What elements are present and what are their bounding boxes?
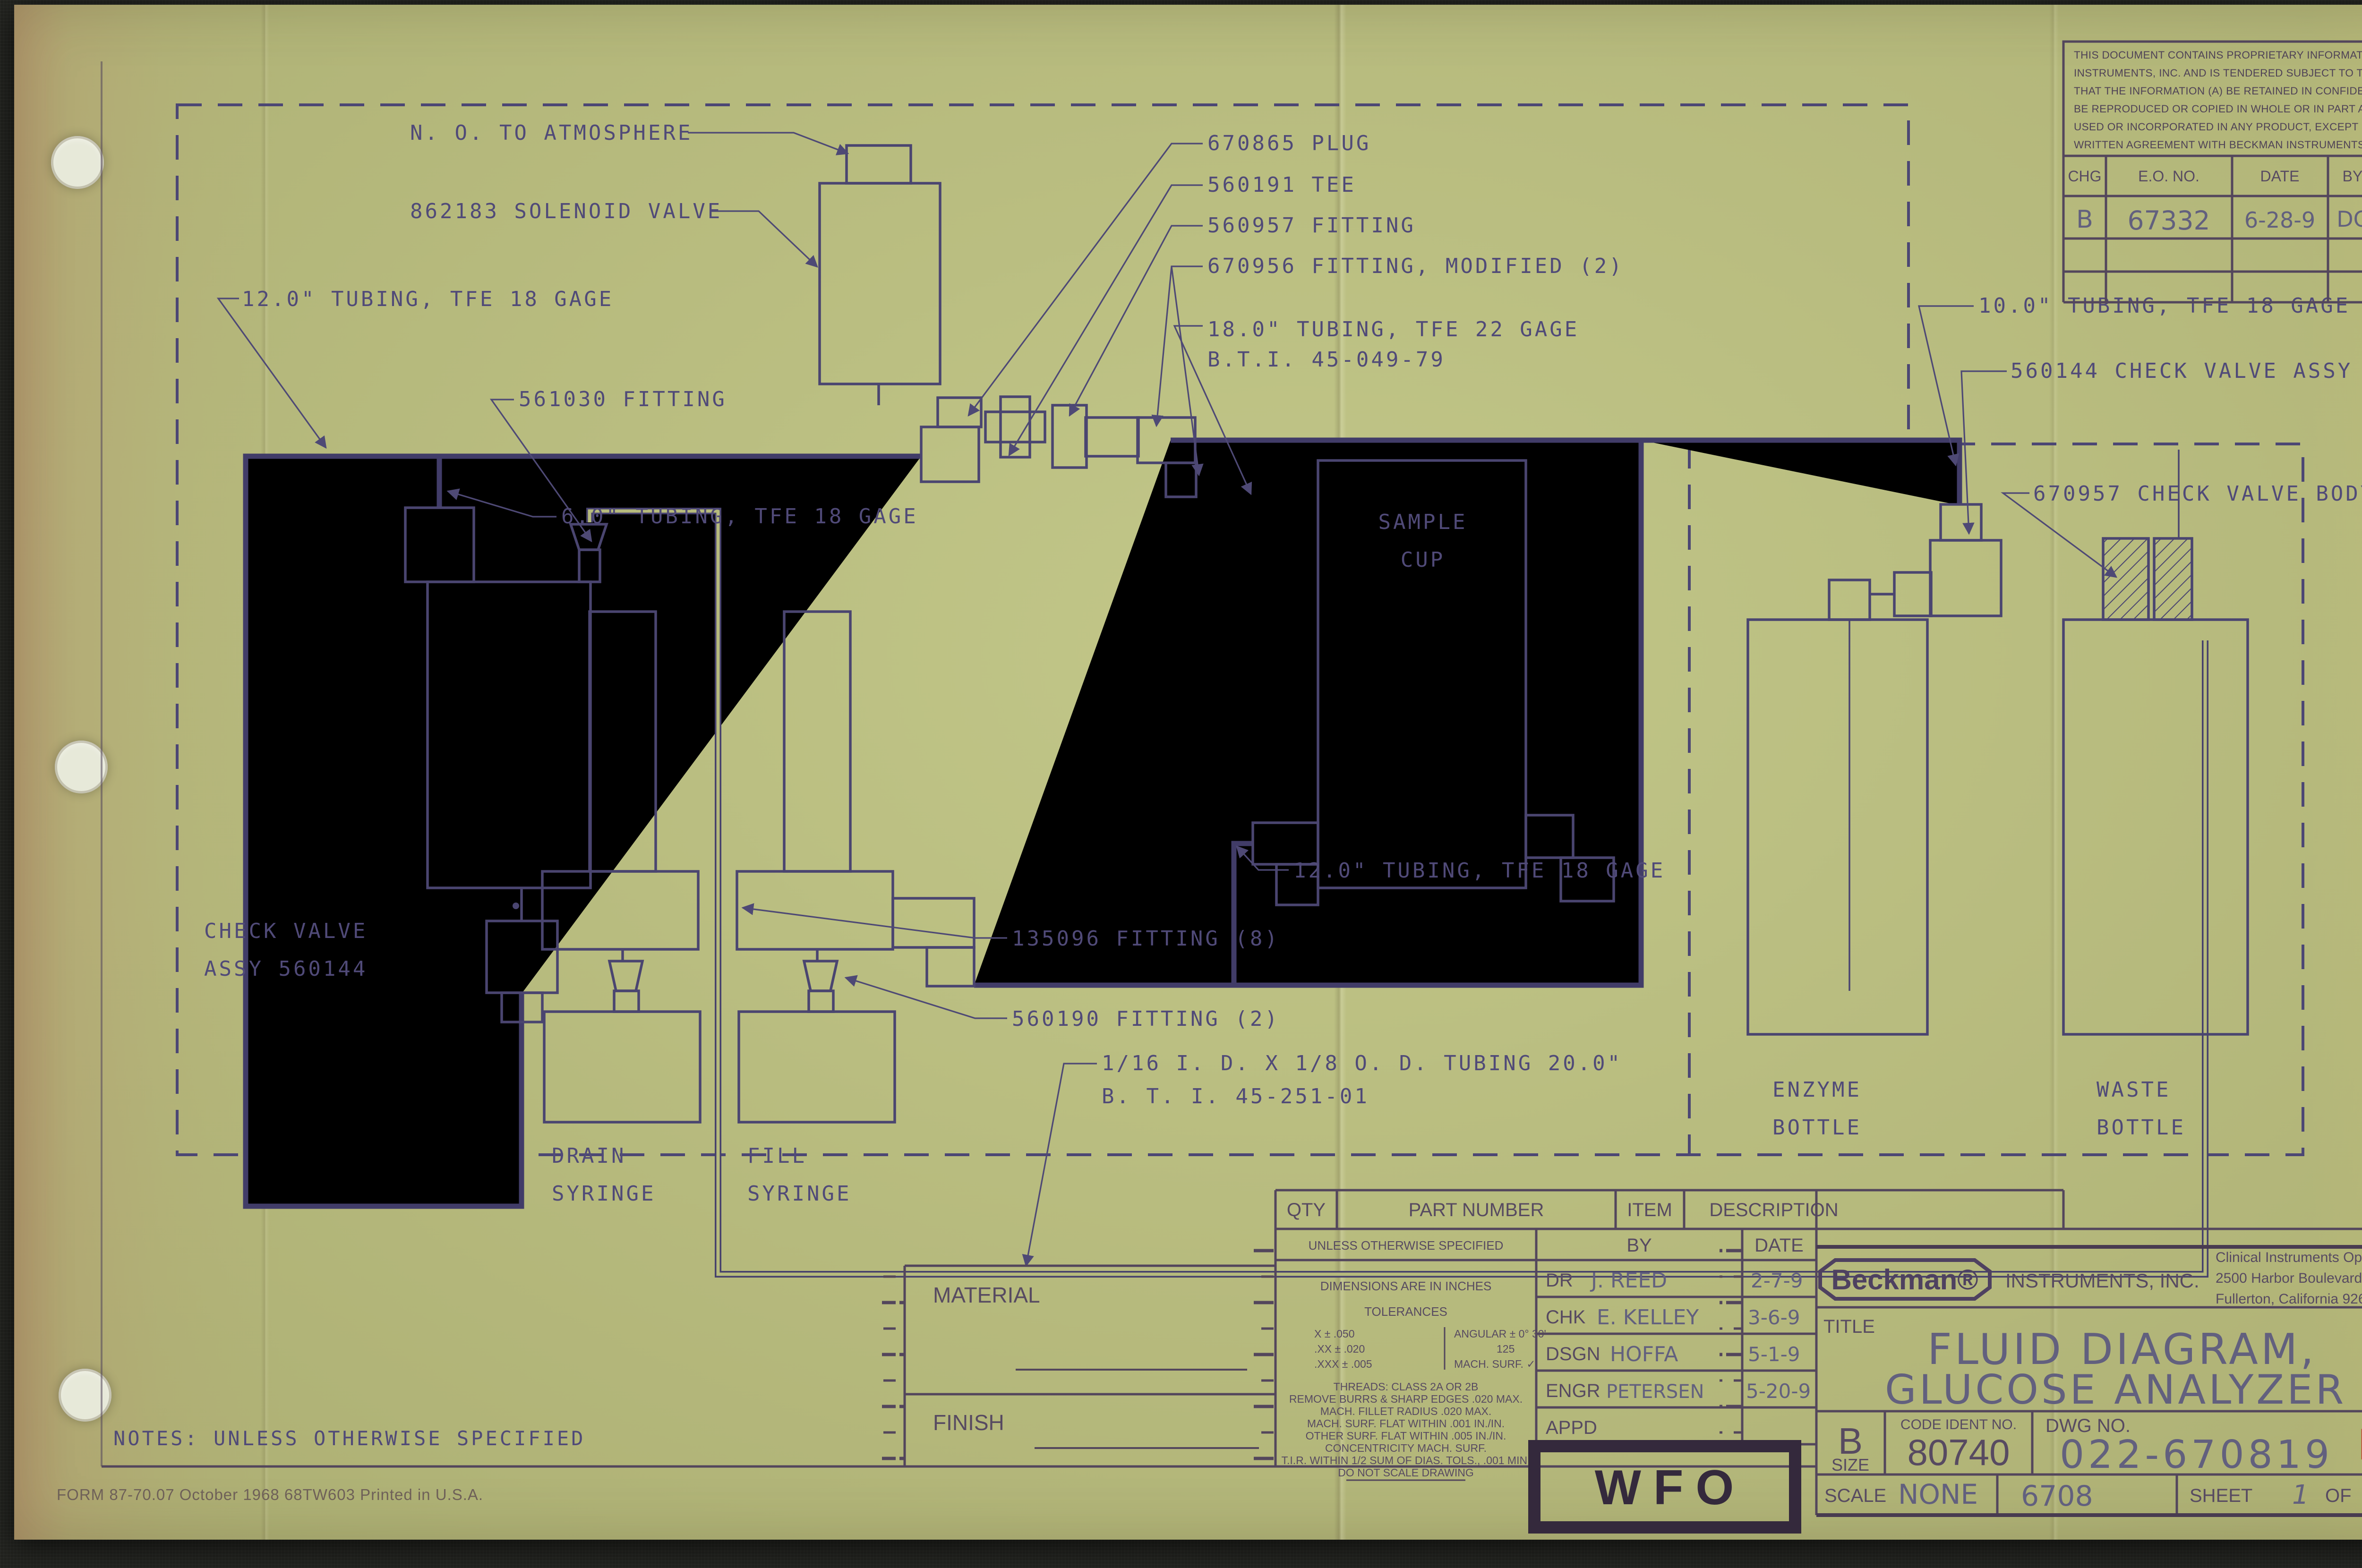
- specs-line: OTHER SURF. FLAT WITHIN .005 IN./IN.: [1306, 1430, 1506, 1442]
- specs-tol-xx: .XX ± .020: [1314, 1343, 1365, 1355]
- chk-name: E. KELLEY: [1597, 1305, 1699, 1329]
- by-header: BY: [1626, 1235, 1652, 1256]
- code-ident-value: 80740: [1908, 1432, 2010, 1473]
- label-enzyme-2: BOTTLE: [1772, 1116, 1862, 1140]
- notice-line: INSTRUMENTS, INC. AND IS TENDERED SUBJEC…: [2074, 67, 2362, 79]
- fitting-cluster: [921, 397, 1196, 497]
- label-solenoid-valve: 862183 SOLENOID VALVE: [410, 199, 722, 223]
- solenoid-valve: [820, 145, 940, 405]
- label-check-valve-assy-560144: 560144 CHECK VALVE ASSY: [2011, 359, 2353, 383]
- description-header: DESCRIPTION: [1709, 1200, 1838, 1220]
- rev-header-chg: CHG: [2068, 168, 2101, 185]
- label-fitting-561030: 561030 FITTING: [519, 387, 727, 411]
- engr-date: 5-20-9: [1746, 1380, 1811, 1403]
- label-fill-2: SYRINGE: [747, 1182, 851, 1206]
- rev-date-value: 6-28-9: [2244, 207, 2315, 233]
- dsgn-date: 5-1-9: [1748, 1343, 1800, 1366]
- label-drain-2: SYRINGE: [552, 1182, 656, 1206]
- form-footer: FORM 87-70.07 October 1968 68TW603 Print…: [57, 1486, 483, 1503]
- specs-line: REMOVE BURRS & SHARP EDGES .020 MAX.: [1289, 1393, 1523, 1405]
- label-tubing-18-2: B.T.I. 45-049-79: [1207, 348, 1446, 372]
- specs-tol-x: X ± .050: [1314, 1328, 1355, 1340]
- company-address-1: Clinical Instruments Operations: [2216, 1250, 2362, 1265]
- label-tubing-18-1: 18.0" TUBING, TFE 22 GAGE: [1207, 317, 1579, 341]
- scale-sheet-row: SCALE NONE 6708 SHEET 1 OF 1: [1816, 1474, 2362, 1515]
- label-tubing-12-mid: 12.0" TUBING, TFE 18 GAGE: [1293, 859, 1665, 883]
- rev-header-date: DATE: [2260, 168, 2300, 185]
- label-waste-1: WASTE: [2097, 1078, 2171, 1102]
- specs-line: MACH. SURF. FLAT WITHIN .001 IN./IN.: [1307, 1417, 1505, 1430]
- label-tubing-6: 6.0" TUBING, TFE 18 GAGE: [561, 504, 918, 528]
- role-dsgn: DSGN: [1546, 1344, 1600, 1364]
- dwg-rev-letter: B: [2357, 1421, 2362, 1469]
- code-ident-label: CODE IDENT NO.: [1900, 1417, 2017, 1432]
- engr-name: PETERSEN: [1606, 1381, 1704, 1403]
- label-tubing-116-2: B. T. I. 45-251-01: [1102, 1084, 1369, 1108]
- item-header: ITEM: [1627, 1200, 1672, 1220]
- label-fitting-135096: 135096 FITTING (8): [1012, 927, 1280, 951]
- specs-surf-num: 125: [1497, 1343, 1515, 1355]
- rev-by-value: DC: [2336, 206, 2362, 232]
- label-tubing-10: 10.0" TUBING, TFE 18 GAGE: [1978, 294, 2350, 318]
- part-number-header: PART NUMBER: [1409, 1200, 1544, 1220]
- fluid-diagram-drawing: N. O. TO ATMOSPHERE 862183 SOLENOID VALV…: [0, 0, 2362, 1568]
- notice-line: WRITTEN AGREEMENT WITH BECKMAN INSTRUMEN…: [2074, 139, 2362, 151]
- title-line-2: GLUCOSE ANALYZER: [1885, 1366, 2346, 1414]
- size-code-dwg-row: B SIZE CODE IDENT NO. 80740 DWG NO. 022-…: [1816, 1411, 2362, 1477]
- company-suffix: INSTRUMENTS, INC.: [2005, 1270, 2199, 1292]
- role-dr: DR: [1546, 1270, 1573, 1291]
- title-section: TITLE FLUID DIAGRAM, GLUCOSE ANALYZER: [1823, 1316, 2346, 1414]
- notice-line: USED OR INCORPORATED IN ANY PRODUCT, EXC…: [2074, 121, 2362, 133]
- dr-date: 2-7-9: [1751, 1269, 1803, 1292]
- label-check-valve-body-670957: 670957 CHECK VALVE BODY: [2033, 482, 2362, 506]
- specs-tol-xxx: .XXX ± .005: [1314, 1358, 1372, 1370]
- revision-table: CHG E.O. NO. DATE BY CHK B 67332 6-28-9 …: [2063, 156, 2362, 302]
- label-plug-670865: 670865 PLUG: [1207, 131, 1371, 155]
- rev-chg-value: B: [2076, 205, 2093, 234]
- chk-date: 3-6-9: [1748, 1306, 1800, 1329]
- waste-bottle: [2063, 538, 2248, 1034]
- date-header: DATE: [1754, 1235, 1804, 1256]
- fill-syringe: [737, 612, 974, 1122]
- notice-line: THIS DOCUMENT CONTAINS PROPRIETARY INFOR…: [2074, 49, 2362, 61]
- notes-text: NOTES: UNLESS OTHERWISE SPECIFIED: [113, 1427, 585, 1450]
- label-sample-cup-2: CUP: [1401, 548, 1445, 572]
- role-engr: ENGR: [1546, 1381, 1600, 1401]
- parts-list-header: QTY PART NUMBER ITEM DESCRIPTION: [1275, 1190, 2362, 1229]
- label-fitting-560957: 560957 FITTING: [1207, 213, 1416, 238]
- notice-line: THAT THE INFORMATION (A) BE RETAINED IN …: [2074, 85, 2362, 97]
- specs-line: THREADS: CLASS 2A OR 2B: [1334, 1381, 1479, 1393]
- role-appd: APPD: [1546, 1417, 1597, 1438]
- wfo-stamp: WFO: [1534, 1446, 1795, 1527]
- rev-header-eono: E.O. NO.: [2138, 168, 2199, 185]
- material-label: MATERIAL: [933, 1283, 1040, 1307]
- role-chk: CHK: [1546, 1307, 1586, 1328]
- dr-name: J. REED: [1590, 1269, 1667, 1293]
- check-valve-assembly-right: [1829, 504, 2001, 620]
- sheet-label: SHEET: [2190, 1485, 2252, 1506]
- label-fitting-670956: 670956 FITTING, MODIFIED (2): [1207, 254, 1624, 278]
- notice-line: BE REPRODUCED OR COPIED IN WHOLE OR IN P…: [2074, 103, 2362, 115]
- qty-header: QTY: [1287, 1200, 1326, 1220]
- sheet-value: 1: [2292, 1480, 2309, 1510]
- label-tubing-116-1: 1/16 I. D. X 1/8 O. D. TUBING 20.0": [1102, 1051, 1622, 1075]
- rev-eono-value: 67332: [2128, 205, 2210, 236]
- label-check-valve-left-2: ASSY 560144: [204, 957, 368, 981]
- label-fitting-560190: 560190 FITTING (2): [1012, 1007, 1280, 1031]
- company-address-2: 2500 Harbor Boulevard: [2216, 1270, 2362, 1286]
- of-label: OF: [2325, 1485, 2352, 1506]
- label-waste-2: BOTTLE: [2097, 1116, 2186, 1140]
- specs-line: MACH. FILLET RADIUS .020 MAX.: [1320, 1405, 1492, 1417]
- scanned-drawing-on-table: N. O. TO ATMOSPHERE 862183 SOLENOID VALV…: [0, 0, 2362, 1568]
- size-label: SIZE: [1831, 1455, 1869, 1474]
- specs-angular: ANGULAR ± 0° 30': [1454, 1328, 1546, 1340]
- specs-mach-surf: MACH. SURF. ✓: [1454, 1358, 1536, 1370]
- label-tubing-12-top: 12.0" TUBING, TFE 18 GAGE: [242, 287, 614, 311]
- scale-value: NONE: [1898, 1478, 1978, 1510]
- specs-heading: UNLESS OTHERWISE SPECIFIED: [1309, 1238, 1504, 1253]
- scale-label: SCALE: [1824, 1485, 1886, 1506]
- specs-line: T.I.R. WITHIN 1/2 SUM OF DIAS. TOLS., .0…: [1282, 1454, 1531, 1466]
- label-tee-560191: 560191 TEE: [1207, 173, 1356, 197]
- wfo-stamp-text: WFO: [1595, 1460, 1746, 1515]
- company-address-3: Fullerton, California 92634: [2216, 1291, 2362, 1307]
- enzyme-bottle: [1748, 620, 1927, 1034]
- label-no-to-atmosphere: N. O. TO ATMOSPHERE: [410, 121, 693, 145]
- material-finish-block: MATERIAL FINISH: [882, 1190, 1275, 1466]
- title-label: TITLE: [1823, 1316, 1875, 1337]
- finish-label: FINISH: [933, 1410, 1004, 1435]
- label-fill-1: FILL: [747, 1144, 807, 1168]
- dsgn-name: HOFFA: [1610, 1342, 1678, 1366]
- label-sample-cup-1: SAMPLE: [1378, 510, 1468, 534]
- beckman-logo: Beckman®: [1831, 1264, 1978, 1295]
- specs-box: UNLESS OTHERWISE SPECIFIED DIMENSIONS AR…: [1275, 1229, 1546, 1480]
- job-number: 6708: [2021, 1480, 2093, 1513]
- label-drain-1: DRAIN: [552, 1144, 626, 1168]
- specs-dims: DIMENSIONS ARE IN INCHES: [1320, 1279, 1492, 1293]
- proprietary-notice: THIS DOCUMENT CONTAINS PROPRIETARY INFOR…: [2063, 42, 2362, 156]
- dwg-no-value: 022-670819: [2060, 1432, 2333, 1477]
- specs-line: CONCENTRICITY MACH. SURF.: [1325, 1442, 1487, 1454]
- label-check-valve-left-1: CHECK VALVE: [204, 919, 368, 943]
- specs-tolerances: TOLERANCES: [1364, 1304, 1447, 1319]
- label-enzyme-1: ENZYME: [1772, 1078, 1862, 1102]
- rev-header-by: BY: [2343, 168, 2362, 185]
- specs-do-not-scale: DO NOT SCALE DRAWING: [1338, 1466, 1474, 1479]
